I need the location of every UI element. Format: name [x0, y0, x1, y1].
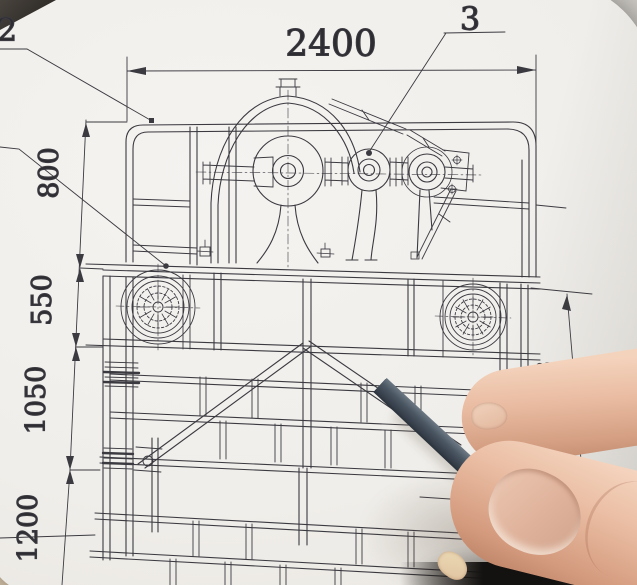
thumb-nail [476, 456, 595, 569]
left-leader-line [0, 147, 169, 269]
callout-2-leader [0, 49, 154, 123]
callout-2-label: 2 [0, 11, 17, 49]
dim-800: 800 [34, 147, 65, 199]
callout-3-label: 3 [460, 0, 480, 38]
dim-550: 550 [27, 274, 58, 326]
dim-1200: 1200 [13, 494, 44, 563]
index-fingernail [471, 401, 508, 430]
dim-1050: 1050 [21, 366, 52, 435]
dimension-top-2400 [127, 55, 536, 158]
dimension-top-label: 2400 [285, 24, 377, 65]
photo-hand-pen-over-engineering-drawing: 2400 2 3 [0, 0, 637, 585]
middle-fingernail [433, 546, 473, 584]
gearbox-front-view [196, 79, 482, 268]
thumb-knuckle-crease [571, 468, 637, 585]
callout-3-leader [366, 32, 505, 156]
